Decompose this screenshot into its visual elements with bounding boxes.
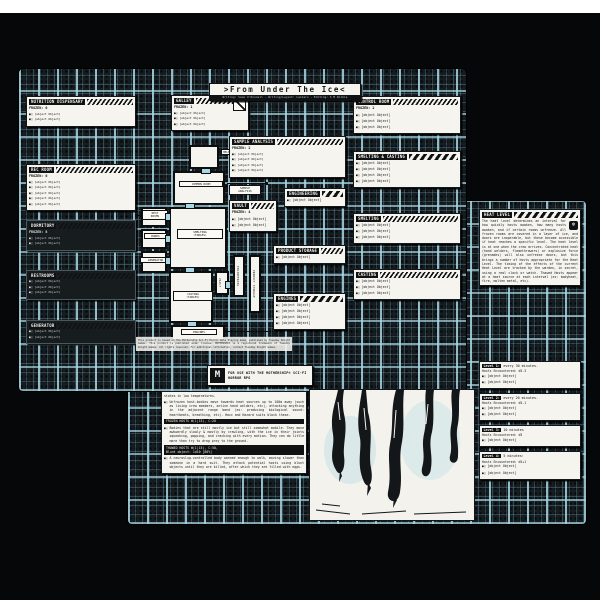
connector-wire (227, 331, 271, 332)
section-engineering: ENGINEERING ■□[object Object] (284, 188, 346, 207)
bullet-icon: ■□ (29, 181, 33, 185)
map-label-smelting: SMELTING (TABLES) (177, 229, 223, 239)
bullet-icon: ■□ (356, 229, 360, 233)
list-item: ■□[object Object] (356, 179, 458, 183)
map-label-product-storage: PRODUCT STORAGE (252, 257, 255, 311)
door-marker (185, 267, 195, 273)
bullet-icon: ■□ (356, 113, 360, 117)
section-control-room: CONTROL ROOM FROZEN: 2 ■□[object Object]… (353, 96, 461, 134)
list-item: ■□[object Object] (232, 169, 343, 173)
hosts-behavior-text: Unfrozen host-bodies move towards heat s… (169, 400, 304, 417)
bullet-icon: ■□ (356, 125, 360, 129)
list-item: ■□[object Object] (356, 119, 458, 123)
bullet-icon: ■□ (482, 374, 486, 378)
hosts-encountered: Hosts Encountered: d5 (482, 433, 578, 437)
list-item: ■□[object Object] (29, 186, 133, 190)
map-label-sample-analysis: SAMPLE ANALYSIS (229, 185, 261, 195)
bullet-icon: ■□ (174, 117, 178, 121)
bullet-icon: ■□ (232, 223, 236, 227)
bullet-icon: ■□ (29, 330, 33, 334)
bullet-icon: ■□ (276, 255, 280, 259)
list-item: ■□[object Object] (356, 285, 458, 289)
bullet-icon: ■□ (29, 192, 33, 196)
mothership-compatibility-badge: M FOR USE WITH THE MOTHERSHIP® SCI-FI HO… (207, 365, 313, 386)
frozen-count: FROZEN: 2 (356, 106, 458, 111)
frozen-count: FROZEN: 0 (29, 106, 133, 111)
bullet-icon: ■□ (29, 280, 33, 284)
credits-byline: Writing: Sean O'Donnell · Writing/Layout… (209, 96, 361, 101)
bullet-icon: ■□ (29, 291, 33, 295)
frozen-hosts-statline: FROZEN HOSTS W(1|15), C:20 (164, 419, 304, 424)
frozen-count: FROZEN: 4 (232, 210, 274, 215)
bullet-icon: ■□ (276, 315, 280, 319)
map-room-engineering (233, 255, 245, 297)
section-smelting: SMELTING ■□[object Object]■□[object Obje… (353, 213, 461, 244)
note-text: [object Object] (487, 380, 516, 384)
map-room-common (173, 171, 225, 205)
hosts-encountered: Hosts Encountered: d5-1 (482, 401, 578, 405)
bullet-icon: ■□ (356, 179, 360, 183)
bullet-icon: ■□ (482, 380, 486, 384)
list-item: ■□[object Object] (29, 203, 133, 207)
page-1-spread: >From Under The Ice< Writing: Sean O'Don… (18, 68, 467, 392)
bullet-icon: ■□ (29, 237, 33, 241)
bullet-icon: ■□ (29, 203, 33, 207)
section-heat-level: HEAT LEVEL ❄ The heat level determines a… (479, 209, 581, 286)
section-smelting-casting-heat: SMELTING & CASTING ■□[object Object]■□[o… (353, 151, 461, 188)
level-heading: Level 4: 5 minutes: (482, 454, 578, 459)
bullet-icon: ■□ (356, 173, 360, 177)
list-item: ■□[object Object] (356, 279, 458, 283)
bullet-icon: ■□ (482, 412, 486, 416)
list-item: ■□[object Object] (356, 167, 458, 171)
list-item: ■□[object Object] (29, 192, 133, 196)
connector-wire (227, 183, 267, 184)
section-rec-room: REC ROOM FROZEN: 0 ■□[object Object]■□[o… (26, 164, 136, 211)
note-text: [object Object] (487, 412, 516, 416)
door-marker (185, 203, 195, 209)
level-chip: Level 2: (482, 396, 501, 400)
note-text: [object Object] (487, 438, 516, 442)
bullet-icon: ■□ (356, 279, 360, 283)
frozen-hosts-description: ■□ Bodies that are still mostly ice but … (164, 426, 304, 443)
note: ■□ [object Object] (482, 374, 578, 378)
bullet-icon: ■□ (174, 112, 178, 116)
list-item: ■□[object Object] (174, 117, 246, 121)
bullet-icon: ■□ (174, 123, 178, 127)
list-item: ■□[object Object] (276, 321, 343, 325)
bullet-icon: ■□ (482, 464, 486, 468)
level-notes: ■□ [object Object] ■□ [object Object] (482, 374, 578, 384)
bullet-icon: ■□ (29, 197, 33, 201)
bullet-icon: ■□ (29, 186, 33, 190)
list-item: ■□[object Object] (29, 330, 133, 334)
list-item: ■□[object Object] (174, 123, 246, 127)
frozen-count: FROZEN: 0 (29, 174, 133, 179)
bullet-icon: ■□ (482, 438, 486, 442)
bullet-icon: ■□ (232, 169, 236, 173)
heat-level-entry: Level 1: every 30 minutes. Hosts Encount… (479, 361, 581, 389)
bullet-icon: ■□ (164, 456, 168, 469)
bullet-icon: ■□ (356, 161, 360, 165)
note-text: [object Object] (487, 374, 516, 378)
mothership-m-logo: M (210, 368, 225, 383)
door-marker (187, 321, 197, 327)
list-item: ■□[object Object] (356, 235, 458, 239)
level-notes: ■□ [object Object] ■□ [object Object] (482, 406, 578, 416)
note: ■□ [object Object] (482, 471, 578, 475)
note: ■□ [object Object] (482, 380, 578, 384)
bullet-icon: ■□ (356, 291, 360, 295)
hosts-encountered: Hosts Encountered: d5+1 (482, 460, 578, 464)
bullet-icon: ■□ (482, 471, 486, 475)
list-item: ■□[object Object] (29, 242, 133, 246)
bullet-icon: ■□ (232, 158, 236, 162)
list-item: ■□[object Object] (29, 291, 133, 295)
heat-level-entry: Level 2: every 20 minutes. Hosts Encount… (479, 393, 581, 421)
level-rate: every 20 minutes. (503, 396, 538, 400)
bullet-icon: ■□ (29, 336, 33, 340)
list-item: ■□[object Object] (29, 181, 133, 185)
section-sample-analysis: SAMPLE ANALYSIS FROZEN: 2 ■□[object Obje… (229, 136, 346, 178)
section-hosts: states in low temperatures. ■□ Unfrozen … (161, 391, 307, 474)
hold-illustration-frame (309, 389, 475, 521)
section-generator: GENERATOR ■□[object Object]■□[object Obj… (26, 320, 136, 344)
list-item: ■□[object Object] (174, 112, 246, 116)
bullet-icon: ■□ (356, 167, 360, 171)
door-marker (165, 235, 171, 243)
hold-illustration (310, 390, 472, 518)
level-rate: 10 minutes (503, 428, 523, 432)
badge-text: FOR USE WITH THE MOTHERSHIP® SCI-FI HORR… (228, 371, 310, 380)
bullet-icon: ■□ (276, 309, 280, 313)
frozen-count: FROZEN: 8 (29, 230, 133, 235)
bullet-icon: ■□ (29, 118, 33, 122)
list-item: ■□[object Object] (232, 223, 274, 227)
level-chip: Level 1: (482, 364, 501, 368)
bullet-icon: ■□ (232, 164, 236, 168)
hosts-encountered: Hosts Encountered: d5-3 (482, 369, 578, 373)
level-chip: Level 4: (482, 454, 501, 458)
list-item: ■□[object Object] (29, 197, 133, 201)
bullet-icon: ■□ (164, 426, 168, 443)
bullet-icon: ■□ (232, 217, 236, 221)
map-label-engines: ENGINES (181, 329, 217, 335)
section-casting: CASTING ■□[object Object]■□[object Objec… (353, 269, 461, 300)
list-item: ■□[object Object] (356, 291, 458, 295)
list-item: ■□[object Object] (356, 125, 458, 129)
module-title: >From Under The Ice< (209, 83, 361, 96)
bullet-icon: ■□ (276, 321, 280, 325)
bullet-icon: ■□ (356, 223, 360, 227)
section-engines: ENGINES ■□[object Object]■□[object Objec… (273, 293, 346, 330)
heat-level-entry: Level 3: 10 minutes Hosts Encountered: d… (479, 425, 581, 447)
list-item: ■□[object Object] (29, 286, 133, 290)
connector-node (265, 182, 268, 185)
list-item: ■□[object Object] (29, 113, 133, 117)
level-heading: Level 1: every 30 minutes. (482, 364, 578, 369)
note: ■□ [object Object] (482, 412, 578, 416)
level-notes: ■□ [object Object] (482, 438, 578, 442)
bullet-icon: ■□ (29, 113, 33, 117)
map-label-common: COMMON ROOM (179, 181, 223, 187)
list-item: ■□[object Object] (356, 223, 458, 227)
bullet-icon: ■□ (164, 400, 168, 417)
door-marker (225, 281, 231, 289)
list-item: ■□[object Object] (276, 255, 343, 259)
list-item: ■□[object Object] (276, 303, 343, 307)
list-item: ■□[object Object] (356, 113, 458, 117)
map-room-product-storage (249, 255, 261, 313)
bullet-icon: ■□ (232, 153, 236, 157)
door-marker (165, 257, 171, 265)
level-heading: Level 2: every 20 minutes. (482, 396, 578, 401)
product-image: HEAT LEVEL ❄ The heat level determines a… (0, 0, 600, 600)
list-item: ■□[object Object] (232, 153, 343, 157)
list-item: ■□[object Object] (29, 336, 133, 340)
map-label-engineering: ENGINEERING (236, 257, 239, 295)
list-item: ■□[object Object] (356, 173, 458, 177)
list-item: ■□[object Object] (29, 118, 133, 122)
list-item: ■□[object Object] (232, 217, 274, 221)
map-room-helm (189, 145, 219, 169)
bullet-icon: ■□ (276, 303, 280, 307)
map-label-vault: VAULT (218, 273, 221, 293)
bullet-icon: ■□ (482, 406, 486, 410)
frozen-count: FROZEN: 2 (232, 146, 343, 151)
note: ■□ [object Object] (482, 406, 578, 410)
bullet-icon: ■□ (287, 198, 291, 202)
note: ■□ [object Object] (482, 464, 578, 468)
note-text: [object Object] (487, 406, 516, 410)
bullet-icon: ■□ (356, 119, 360, 123)
level-rate: every 30 minutes. (503, 364, 538, 368)
hosts-intro-continuation: states in low temperatures. (164, 394, 304, 398)
section-product-storage: PRODUCT STORAGE ■□[object Object] (273, 245, 346, 264)
door-marker (201, 168, 211, 174)
list-item: ■□[object Object] (287, 198, 343, 202)
section-vault: VAULT FROZEN: 4 ■□[object Object]■□[obje… (229, 200, 277, 232)
list-item: ■□[object Object] (29, 237, 133, 241)
map-label-bunks: BUNKS (144, 233, 167, 239)
note: ■□ [object Object] (482, 438, 578, 442)
list-item: ■□[object Object] (276, 309, 343, 313)
heat-level-table: Level 1: every 30 minutes. Hosts Encount… (479, 361, 581, 484)
license-fine-print: This product is based on the Mothership … (136, 337, 292, 351)
list-item: ■□[object Object] (276, 315, 343, 319)
list-item: ■□[object Object] (232, 158, 343, 162)
bullet-icon: ■□ (356, 285, 360, 289)
section-header: HEAT LEVEL (482, 212, 578, 218)
thawed-hosts-description: ■□ A neuroslug-controlled body warmed en… (164, 456, 304, 469)
heat-level-rules: The heat level determines an interval fo… (482, 219, 578, 283)
hosts-behavior: ■□ Unfrozen host-bodies move towards hea… (164, 400, 304, 417)
map-label-casting: CASTING (TABLES) (173, 291, 213, 301)
list-item: ■□[object Object] (29, 280, 133, 284)
title-block: >From Under The Ice< Writing: Sean O'Don… (209, 83, 361, 101)
bullet-icon: ■□ (29, 286, 33, 290)
level-notes: ■□ [object Object] ■□ [object Object] (482, 464, 578, 474)
list-item: ■□[object Object] (232, 164, 343, 168)
heat-level-entry: Level 4: 5 minutes: Hosts Encountered: d… (479, 451, 581, 479)
section-restrooms: RESTROOMS ■□[object Object]■□[object Obj… (26, 270, 136, 300)
level-rate: 5 minutes: (503, 454, 523, 458)
list-item: ■□[object Object] (356, 229, 458, 233)
section-dormitory: DORMITORY FROZEN: 8 ■□[object Object]■□[… (26, 220, 136, 251)
door-marker (165, 213, 171, 221)
thawed-hosts-statline: THAWED HOSTS W(1|15), C:50, Blunt object… (164, 445, 304, 455)
freeze-icon: ❄ (569, 221, 578, 230)
bullet-icon: ■□ (356, 235, 360, 239)
note-text: [object Object] (487, 464, 516, 468)
note-text: [object Object] (487, 471, 516, 475)
level-chip: Level 3: (482, 428, 501, 432)
bullet-icon: ■□ (29, 242, 33, 246)
level-heading: Level 3: 10 minutes (482, 428, 578, 433)
section-nutrition-dispensary: NUTRITION DISPENSARY FROZEN: 0 ■□[object… (26, 96, 136, 127)
list-item: ■□[object Object] (356, 161, 458, 165)
connector-node (135, 214, 138, 217)
